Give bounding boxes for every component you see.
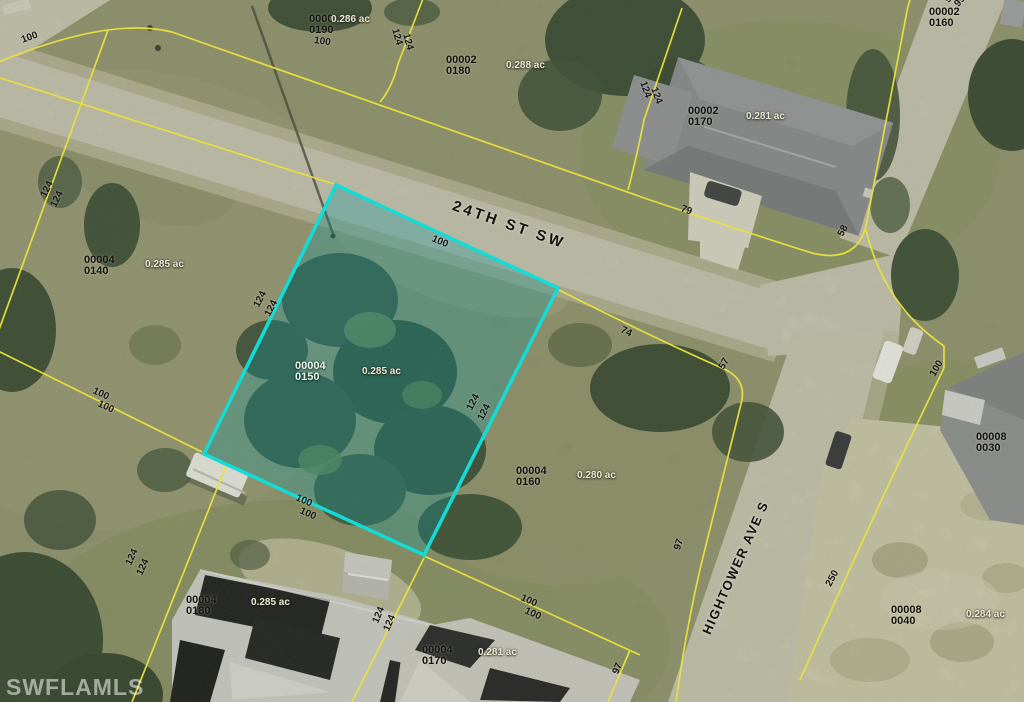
aerial-parcel-map: 000001900.286 ac0000201800.288 ac0000201… (0, 0, 1024, 702)
watermark: SWFLAMLS (6, 674, 144, 701)
aerial-photo (0, 0, 1024, 702)
